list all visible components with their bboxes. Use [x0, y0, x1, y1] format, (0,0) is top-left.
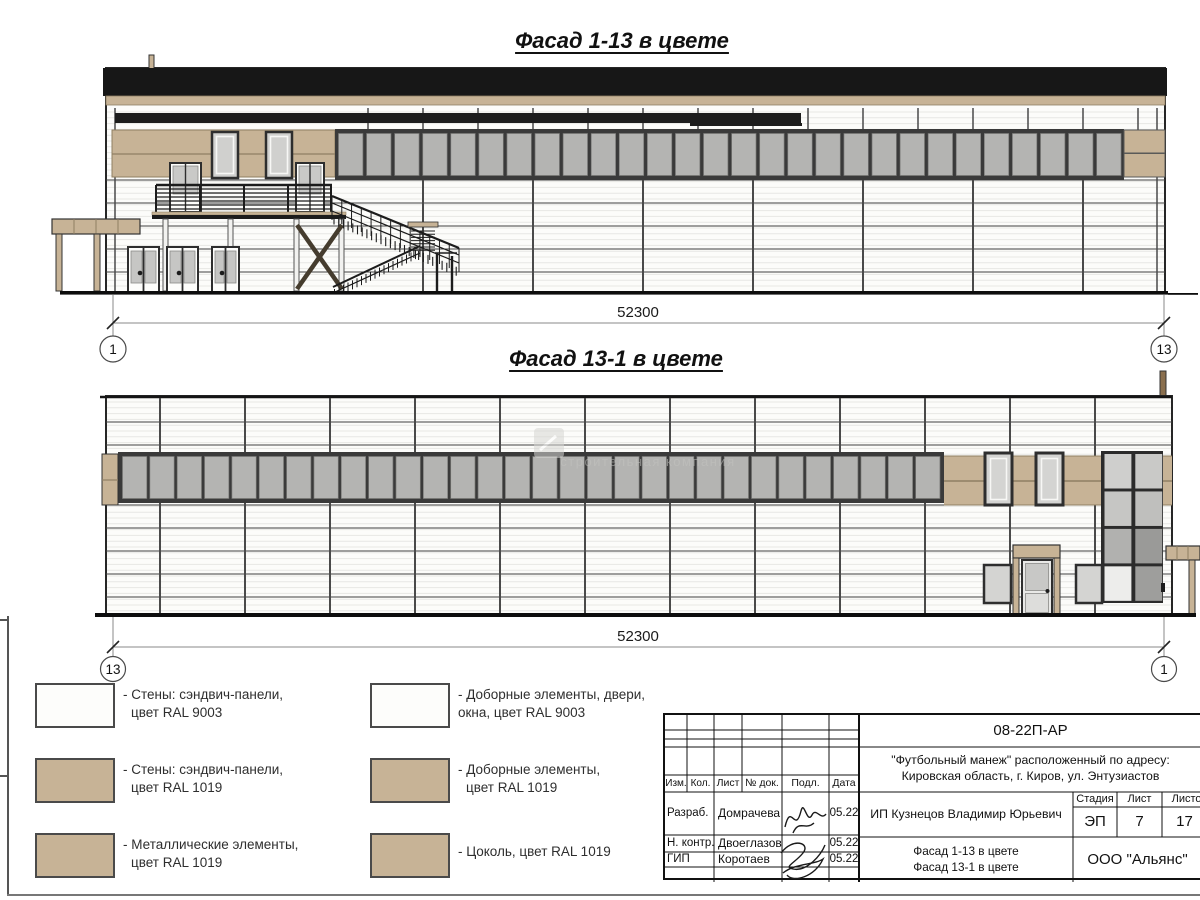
frame-left-line: [7, 616, 9, 896]
legend-label-walls-ral1019: - Стены: сэндвич-панели, цвет RAL 1019: [123, 761, 283, 797]
facade-1-13-drawing: [52, 55, 1198, 295]
legend-swatch-trim-ral1019: [370, 758, 450, 803]
client-name: ИП Кузнецов Владимир Юрьевич: [859, 792, 1073, 837]
legend-text: - Стены: сэндвич-панели,: [123, 687, 283, 702]
legend-text: цвет RAL 1019: [123, 854, 298, 872]
row-nkontr-name: Двоеглазов: [714, 835, 786, 852]
watermark-text: строительная компания: [560, 454, 735, 469]
col-list: Лист: [714, 775, 742, 792]
signature-gip: [781, 843, 825, 878]
sheets-label: Листов: [1162, 792, 1200, 807]
legend-label-plinth-ral1019: - Цоколь, цвет RAL 1019: [458, 843, 611, 861]
legend-text: цвет RAL 1019: [123, 779, 283, 797]
col-doc: № док.: [742, 775, 782, 792]
row-gip-date: 05.22: [829, 852, 859, 867]
col-kol: Кол.: [687, 775, 714, 792]
legend-swatch-metal-ral1019: [35, 833, 115, 878]
sheet-value: 7: [1117, 807, 1162, 837]
stage-label: Стадия: [1073, 792, 1117, 807]
legend-text: - Металлические элементы,: [123, 837, 298, 852]
row-gip-role: ГИП: [665, 852, 716, 867]
legend-swatch-trim-ral9003: [370, 683, 450, 728]
sheet-name-line2: Фасад 13-1 в цвете: [859, 859, 1073, 875]
facade2-dimension-value: 52300: [617, 628, 659, 645]
frame-tick: [0, 775, 7, 777]
legend-text: - Доборные элементы, двери,: [458, 687, 645, 702]
facade2-title: Фасад 13-1 в цвете: [509, 346, 723, 372]
title-block: Изм. Кол. Лист № док. Подл. Дата Разраб.…: [663, 713, 1200, 880]
facade1-dimension-value: 52300: [617, 304, 659, 321]
sheet-name-line1: Фасад 1-13 в цвете: [859, 843, 1073, 859]
legend-label-trim-ral9003: - Доборные элементы, двери, окна, цвет R…: [458, 686, 645, 722]
legend-text: - Цоколь, цвет RAL 1019: [458, 844, 611, 859]
drawing-sheet: Фасад 1-13 в цвете Фасад 13-1 в цвете ст…: [0, 0, 1200, 900]
doc-number: 08-22П-АР: [859, 715, 1200, 747]
row-razrab-role: Разраб.: [665, 792, 716, 835]
legend-label-walls-ral9003: - Стены: сэндвич-панели, цвет RAL 9003: [123, 686, 283, 722]
facade2-axis-right: 1: [1160, 662, 1168, 677]
company-name: ООО "Альянс": [1073, 837, 1200, 882]
row-nkontr-role: Н. контр.: [665, 835, 716, 852]
legend-swatch-plinth-ral1019: [370, 833, 450, 878]
legend-text: - Доборные элементы,: [458, 762, 600, 777]
dimension-2-annotations: 52300 13 1: [101, 628, 1177, 682]
legend-label-metal-ral1019: - Металлические элементы, цвет RAL 1019: [123, 836, 298, 872]
legend-text: - Стены: сэндвич-панели,: [123, 762, 283, 777]
legend-label-trim-ral1019: - Доборные элементы, цвет RAL 1019: [458, 761, 600, 797]
project-address-line2: Кировская область, г. Киров, ул. Энтузиа…: [859, 768, 1200, 784]
sheet-label: Лист: [1117, 792, 1162, 807]
facade1-axis-right: 13: [1156, 342, 1171, 357]
col-izm: Изм.: [665, 775, 687, 792]
facade1-axis-left: 1: [109, 342, 117, 357]
facade1-title: Фасад 1-13 в цвете: [515, 28, 729, 54]
legend-text: цвет RAL 9003: [123, 704, 283, 722]
row-nkontr-date: 05.22: [829, 835, 859, 852]
row-razrab-name: Домрачева: [714, 792, 786, 835]
legend-swatch-walls-ral9003: [35, 683, 115, 728]
legend-swatch-walls-ral1019: [35, 758, 115, 803]
sheets-value: 17: [1162, 807, 1200, 837]
row-gip-name: Коротаев: [714, 852, 786, 867]
col-data: Дата: [829, 775, 859, 792]
signature-razrab: [785, 808, 826, 833]
facade2-axis-left: 13: [105, 662, 120, 677]
legend-text: окна, цвет RAL 9003: [458, 704, 645, 722]
frame-tick: [0, 619, 7, 621]
frame-bottom-line: [7, 894, 1200, 896]
project-address-line1: "Футбольный манеж" расположенный по адре…: [859, 752, 1200, 768]
stage-value: ЭП: [1073, 807, 1117, 837]
facade-13-1-drawing: [95, 371, 1200, 617]
col-podp: Подл.: [782, 775, 829, 792]
legend-text: цвет RAL 1019: [458, 779, 600, 797]
row-razrab-date: 05.22: [829, 792, 859, 835]
